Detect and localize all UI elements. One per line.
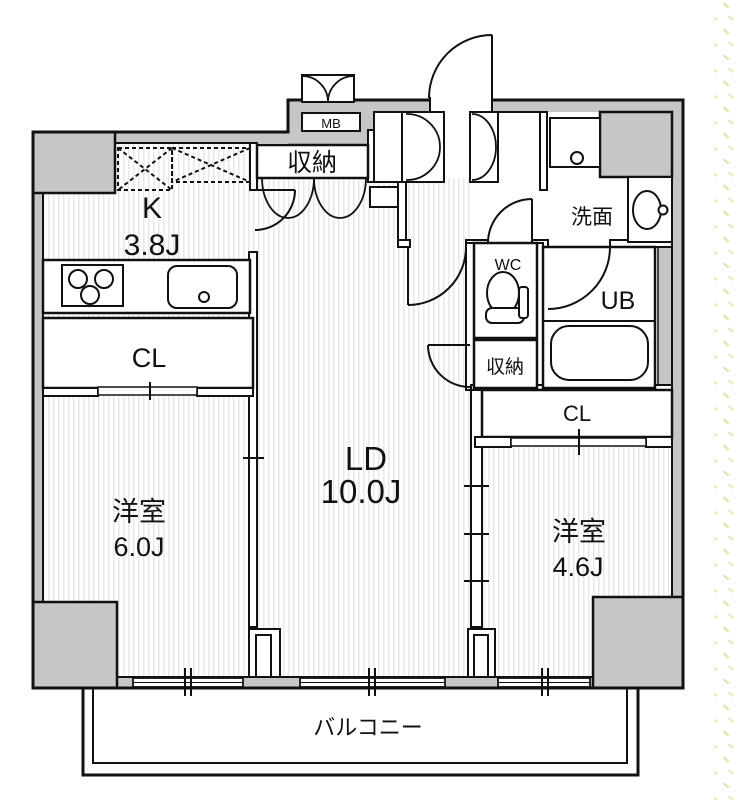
wash-basin-icon — [633, 191, 661, 229]
balcony-label: バルコニー — [313, 715, 423, 740]
bedroom-left-size: 6.0J — [113, 532, 164, 562]
washroom-label: 洗面 — [571, 206, 613, 229]
closet-left-label: CL — [132, 343, 167, 373]
block-bottom-left — [33, 602, 117, 688]
block-top-right — [600, 112, 672, 177]
closet-left-bottom-wall — [43, 387, 253, 396]
block-top-left — [33, 132, 115, 193]
closet-right-label: CL — [563, 401, 591, 426]
closet-right-bottom-wall — [475, 437, 672, 447]
margin-texture — [714, 0, 736, 800]
bathtub-icon — [551, 326, 648, 380]
living-dining-label: LD — [345, 440, 387, 477]
kitchen-size: 3.8J — [124, 229, 181, 262]
bedroom-right-label: 洋室 — [552, 517, 606, 547]
pillar-box — [370, 187, 398, 207]
floor-plan: K 3.8J LD 10.0J 洋室 6.0J 洋室 4.6J CL CL 収納… — [0, 0, 736, 800]
basin-faucet-icon — [659, 206, 668, 215]
bedroom-left-label: 洋室 — [112, 497, 166, 527]
kitchen-label: K — [142, 192, 162, 225]
closet-left-sliding-door — [98, 387, 197, 395]
drain-icon — [571, 152, 583, 164]
block-bottom-right — [593, 597, 683, 688]
wc-label: WC — [495, 257, 522, 274]
living-dining-floor — [250, 178, 471, 677]
bedroom-right-size: 4.6J — [552, 552, 603, 582]
floor-plan-drawing: K 3.8J LD 10.0J 洋室 6.0J 洋室 4.6J CL CL 収納… — [0, 0, 736, 800]
meter-box-label: MB — [321, 116, 341, 131]
living-dining-size: 10.0J — [321, 473, 402, 510]
storage-top-label: 収納 — [287, 149, 337, 177]
storage-middle-label: 収納 — [486, 356, 524, 378]
entrance-threshold — [430, 97, 492, 113]
unit-bath-label: UB — [601, 287, 636, 315]
faucet-icon — [199, 292, 209, 302]
